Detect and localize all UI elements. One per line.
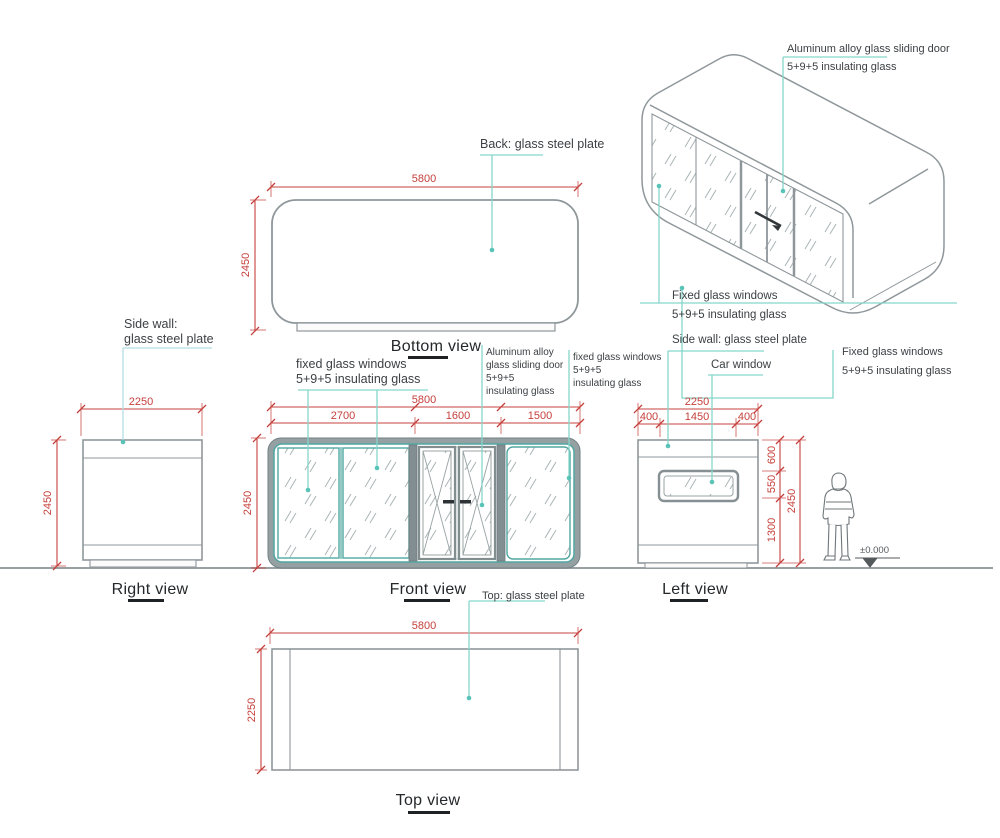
front-right-window-note-line2: 5+9+5 — [573, 364, 601, 377]
iso-door-note-line2: 5+9+5 insulating glass — [787, 60, 896, 74]
back-plate-note: Back: glass steel plate — [480, 136, 604, 152]
iso-right-windows-note-line1: Fixed glass windows — [842, 345, 943, 359]
front-view-underline — [404, 599, 450, 602]
front-door-note-line2: glass sliding door — [486, 359, 563, 372]
leader-line-right-view — [123, 348, 212, 442]
iso-left-windows-note-line2: 5+9+5 insulating glass — [672, 308, 786, 323]
right-view-height-dim: 2450 — [42, 491, 54, 515]
front-door-note-line1: Aluminum alloy — [486, 346, 554, 359]
front-left-windows-note-line2: 5+9+5 insulating glass — [296, 371, 420, 387]
front-view-label: Front view — [390, 581, 467, 599]
top-view-underline — [408, 811, 450, 814]
level-marker-icon — [855, 558, 900, 567]
left-view-width-dim: 2250 — [685, 396, 709, 408]
left-view-height2-dim: 550 — [766, 475, 778, 493]
bottom-view-drawing — [272, 200, 578, 331]
front-view-height-dim: 2450 — [242, 491, 254, 515]
left-view-underline — [670, 599, 708, 602]
left-view-segment1-dim: 400 — [640, 411, 658, 423]
right-view-side-wall-note-line2: glass steel plate — [124, 331, 214, 347]
iso-left-windows-note-line1: Fixed glass windows — [672, 289, 777, 304]
iso-right-windows-note-line2: 5+9+5 insulating glass — [842, 364, 951, 378]
car-window-drawing — [659, 471, 738, 501]
drawing-linework — [0, 0, 1000, 838]
left-view-segment3-dim: 400 — [738, 411, 756, 423]
right-view-side-wall-note-line1: Side wall: — [124, 316, 178, 332]
car-window-note: Car window — [711, 358, 771, 373]
top-view-drawing — [272, 649, 578, 770]
person-figure — [823, 473, 854, 560]
bottom-view-width-dim: 5800 — [412, 173, 436, 185]
left-view-label: Left view — [662, 581, 728, 599]
isometric-drawing — [642, 55, 944, 313]
bottom-view-depth-dim: 2450 — [240, 253, 252, 277]
right-view-drawing — [83, 440, 202, 567]
left-view-total-height-dim: 2450 — [786, 489, 798, 513]
front-view-segment1-dim: 2700 — [331, 410, 355, 422]
right-view-label: Right view — [112, 581, 189, 599]
top-plate-note: Top: glass steel plate — [482, 589, 585, 603]
bottom-view-underline — [408, 356, 448, 359]
right-view-underline — [128, 599, 164, 602]
front-view-segment2-dim: 1600 — [446, 410, 470, 422]
right-view-width-dim: 2250 — [129, 396, 153, 408]
front-view-drawing — [268, 438, 580, 568]
top-view-label: Top view — [396, 792, 461, 810]
front-view-segment3-dim: 1500 — [528, 410, 552, 422]
top-view-width-dim: 5800 — [412, 620, 436, 632]
bottom-view-label: Bottom view — [391, 338, 481, 356]
front-door-note-line3: 5+9+5 — [486, 372, 514, 385]
left-view-drawing — [638, 440, 758, 568]
front-right-window-note-line1: fixed glass windows — [573, 351, 661, 364]
level-mark-text: ±0.000 — [860, 545, 889, 556]
technical-drawing-canvas: Back: glass steel plate 5800 2450 Bottom… — [0, 0, 1000, 838]
front-door-note-line4: insulating glass — [486, 385, 554, 398]
iso-door-note-line1: Aluminum alloy glass sliding door — [787, 42, 950, 56]
front-right-window-note-line3: insulating glass — [573, 377, 641, 390]
left-view-segment2-dim: 1450 — [685, 411, 709, 423]
front-left-windows-note-line1: fixed glass windows — [296, 356, 406, 372]
front-view-width-dim: 5800 — [412, 394, 436, 406]
top-view-depth-dim: 2250 — [246, 698, 258, 722]
left-view-height1-dim: 600 — [766, 446, 778, 464]
left-view-height3-dim: 1300 — [766, 518, 778, 542]
side-wall-note: Side wall: glass steel plate — [672, 333, 807, 348]
